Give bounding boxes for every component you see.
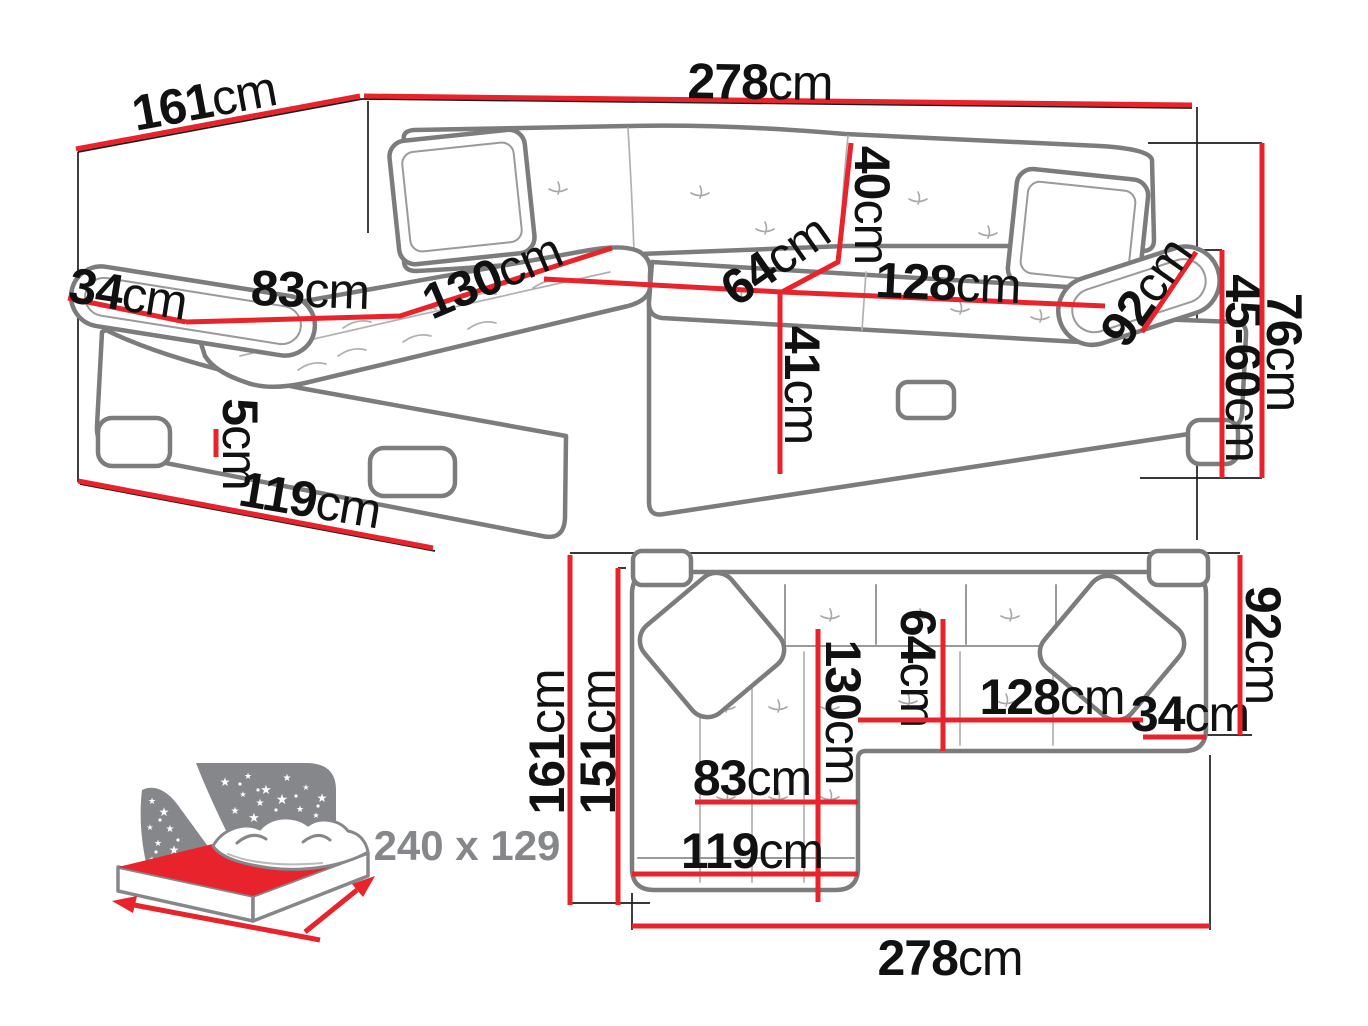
dim-label: 278cm — [687, 53, 833, 111]
svg-text:★: ★ — [159, 805, 170, 819]
dim-label: 119cm — [681, 823, 823, 879]
plan-view: 161cm 151cm 130cm 64cm 128cm 34cm 92cm — [519, 551, 1291, 986]
dim-label: 161cm — [519, 669, 575, 814]
svg-text:★: ★ — [283, 773, 292, 784]
svg-text:★: ★ — [146, 823, 153, 832]
plan-left-armrest — [633, 551, 691, 585]
dim-label: 41cm — [774, 326, 830, 444]
svg-text:★: ★ — [166, 824, 175, 835]
dim-plan-total-width: 278cm — [632, 926, 1210, 986]
svg-text:★: ★ — [317, 791, 328, 805]
plan-right-armrest — [1149, 551, 1208, 585]
svg-text:★: ★ — [154, 839, 162, 849]
dim-label: 128cm — [874, 252, 1021, 314]
svg-text:★: ★ — [248, 811, 260, 826]
dim-plan-depth-151: 151cm — [570, 568, 626, 905]
dim-label: 161cm — [128, 60, 281, 142]
sleeping-function-icon: ★ ★ ★ ★ ★ ★ ★ ★ ★ ★ ★ ★ ★ ★ ★ ★ ★ ★ ★ ★ — [112, 763, 560, 940]
sleeping-size-label: 240 x 129 — [374, 822, 561, 869]
dim-total-height: 76cm — [1256, 143, 1312, 478]
svg-text:★: ★ — [256, 798, 265, 809]
perspective-view: 278cm 161cm 34cm 83cm 130cm 40cm 64cm 12… — [65, 53, 1312, 551]
dim-label: 83cm — [250, 260, 370, 320]
dim-total-depth: 161cm — [76, 60, 360, 149]
svg-text:★: ★ — [244, 772, 252, 782]
svg-text:★: ★ — [148, 797, 156, 807]
svg-text:★: ★ — [260, 783, 272, 798]
dim-label: 92cm — [1235, 586, 1291, 704]
dim-label: 64cm — [890, 609, 946, 727]
svg-text:★: ★ — [296, 805, 304, 815]
dim-label: 151cm — [570, 669, 626, 814]
dim-label: 83cm — [693, 750, 811, 806]
svg-text:★: ★ — [231, 806, 240, 817]
diagram-canvas: 278cm 161cm 34cm 83cm 130cm 40cm 64cm 12… — [0, 0, 1368, 1026]
svg-text:★: ★ — [312, 811, 319, 820]
svg-text:★: ★ — [276, 792, 289, 808]
dim-label: 34cm — [1131, 686, 1249, 742]
sofa-dimension-diagram: 278cm 161cm 34cm 83cm 130cm 40cm 64cm 12… — [0, 0, 1368, 1026]
svg-text:★: ★ — [302, 783, 309, 792]
svg-text:★: ★ — [239, 790, 246, 799]
dim-label: 130cm — [815, 639, 871, 784]
dim-plan-armrest-width: 34cm — [1131, 686, 1249, 742]
dim-label: 40cm — [844, 146, 900, 264]
svg-text:★: ★ — [220, 775, 231, 789]
dim-label: 76cm — [1256, 293, 1312, 411]
dim-label: 128cm — [979, 669, 1124, 725]
dim-label: 278cm — [877, 930, 1022, 986]
dim-total-width: 278cm — [364, 53, 1192, 111]
